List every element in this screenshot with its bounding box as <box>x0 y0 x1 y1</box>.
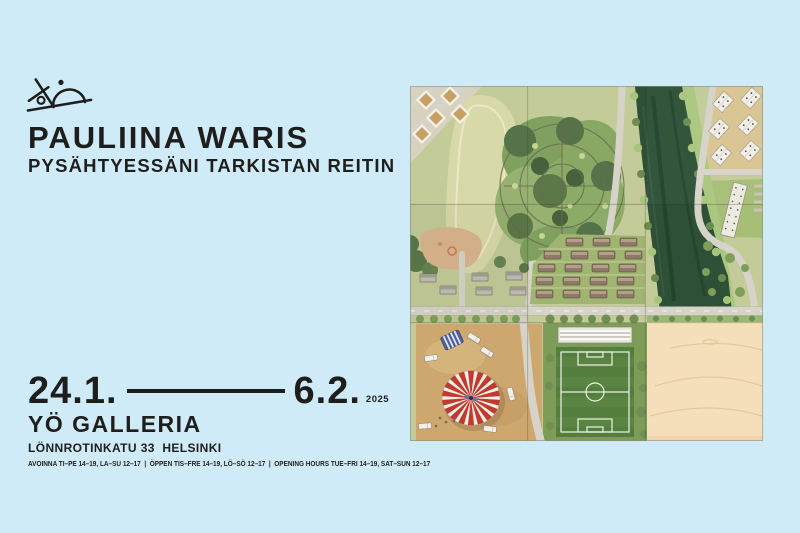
gallery-name: YÖ GALLERIA <box>28 413 428 436</box>
gallery-address: LÖNNROTINKATU 33 HELSINKI <box>28 442 428 454</box>
exhibition-poster: PAULIINA WARIS PYSÄHTYESSÄNI TARKISTAN R… <box>0 0 800 533</box>
artwork-map-painting <box>410 86 763 441</box>
figure-pushing-dome-icon <box>26 74 94 116</box>
blank-wood-panel <box>647 322 763 441</box>
date-range: 24.1. 6.2. 2025 <box>28 372 428 410</box>
artist-name: PAULIINA WARIS <box>28 122 395 153</box>
poster-footer: 24.1. 6.2. 2025 YÖ GALLERIA LÖNNROTINKAT… <box>28 372 428 468</box>
date-range-dash <box>127 389 285 394</box>
artwork-map-painting-svg <box>410 86 763 441</box>
exhibition-title: PYSÄHTYESSÄNI TARKISTAN REITIN <box>28 157 395 176</box>
poster-header: PAULIINA WARIS PYSÄHTYESSÄNI TARKISTAN R… <box>28 74 395 176</box>
start-date: 24.1. <box>28 372 118 410</box>
exhibition-year: 2025 <box>366 395 389 405</box>
opening-hours: AVOINNA TI–PE 14–19, LA–SU 12–17 | ÖPPEN… <box>28 461 396 468</box>
end-date: 6.2. <box>294 372 361 410</box>
